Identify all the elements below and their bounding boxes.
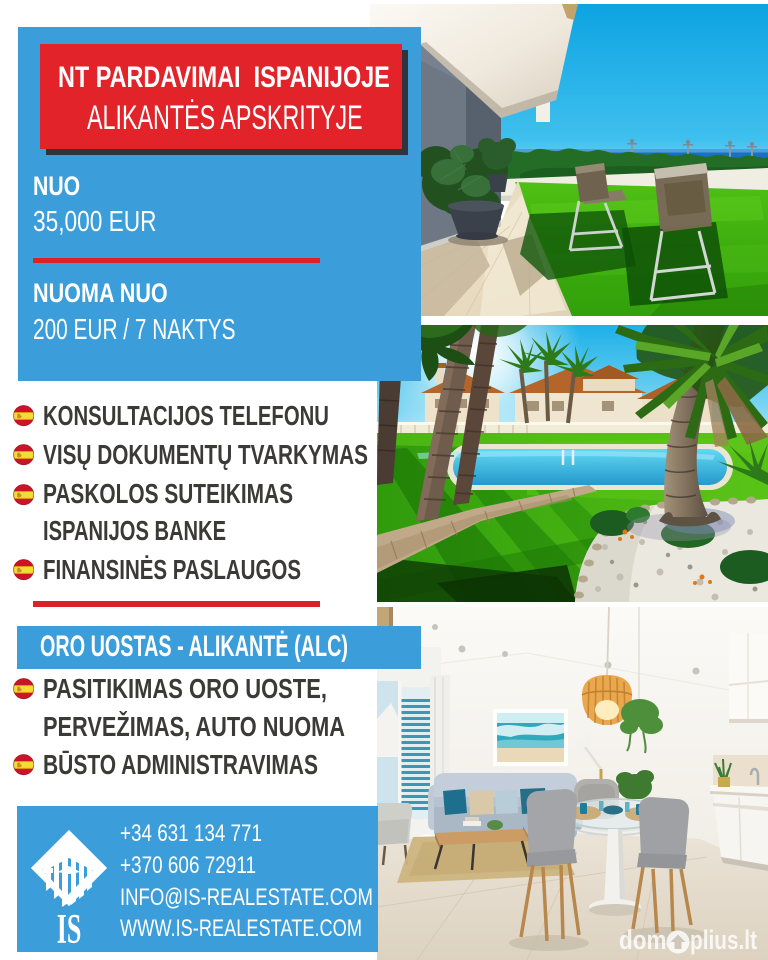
svg-text:IS: IS <box>57 906 82 946</box>
